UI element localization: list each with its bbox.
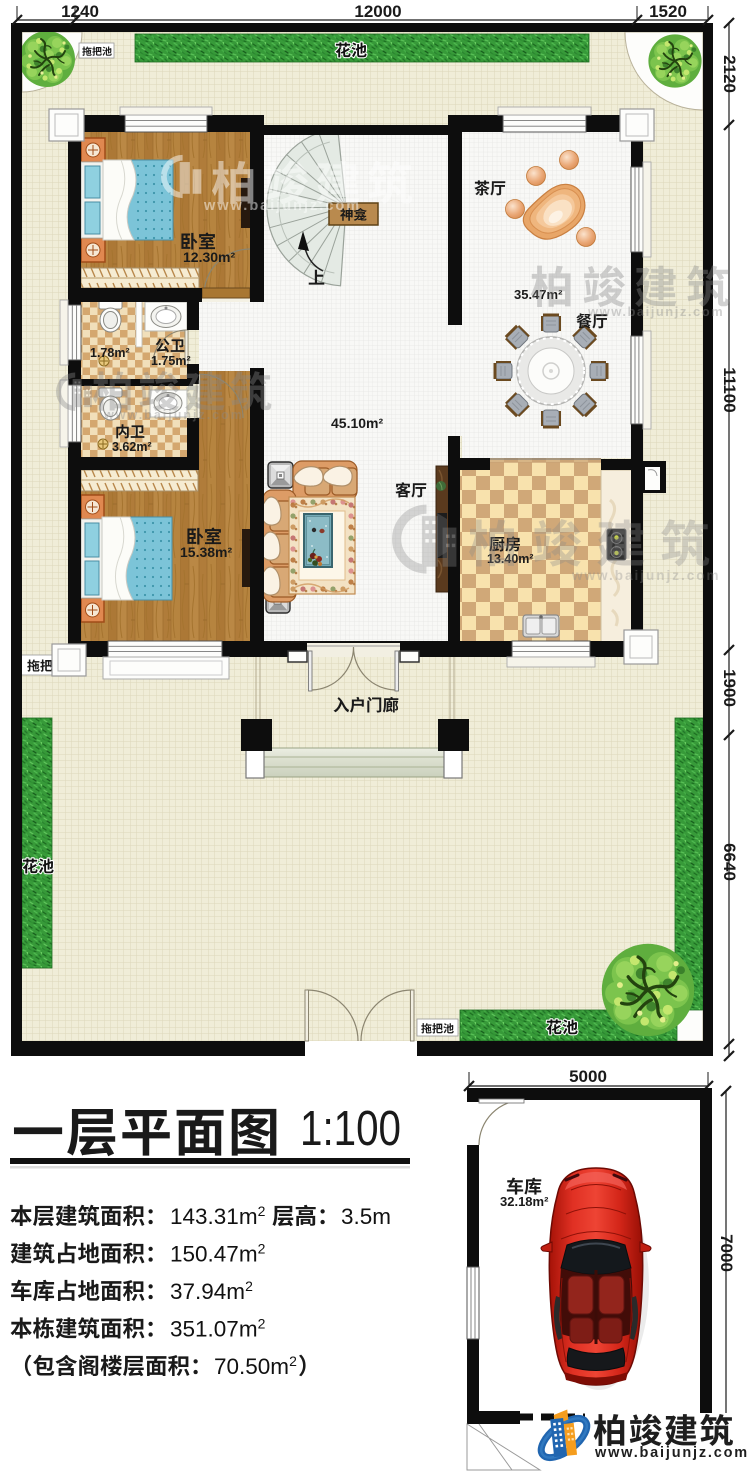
svg-text:1:100: 1:100 xyxy=(300,1102,401,1156)
svg-text:150.47m2: 150.47m2 xyxy=(170,1241,266,1267)
svg-text:www.baijunjz.com: www.baijunjz.com xyxy=(571,568,721,583)
svg-text:1900: 1900 xyxy=(720,669,739,707)
svg-text:www.baijunjz.com: www.baijunjz.com xyxy=(594,1445,749,1461)
svg-text:32.18m²: 32.18m² xyxy=(500,1194,549,1209)
svg-text:1.75m²: 1.75m² xyxy=(151,354,191,368)
svg-text:3.62m²: 3.62m² xyxy=(112,440,152,454)
svg-text:www.baijunjz.com: www.baijunjz.com xyxy=(203,198,361,214)
svg-text:45.10m²: 45.10m² xyxy=(331,415,383,431)
svg-text:1520: 1520 xyxy=(649,2,687,21)
svg-text:11100: 11100 xyxy=(720,367,739,412)
svg-text:1.78m²: 1.78m² xyxy=(90,346,130,360)
svg-text:351.07m2: 351.07m2 xyxy=(170,1316,266,1342)
svg-text:37.94m2: 37.94m2 xyxy=(170,1278,253,1304)
svg-text:www.baijunjz.com: www.baijunjz.com xyxy=(587,304,724,319)
svg-text:5000: 5000 xyxy=(569,1067,607,1086)
svg-text:70.50m2: 70.50m2 xyxy=(214,1353,297,1379)
svg-text:12.30m²: 12.30m² xyxy=(183,249,235,265)
svg-text:www.baijunjz.com: www.baijunjz.com xyxy=(103,408,244,422)
svg-text:2120: 2120 xyxy=(720,55,739,93)
svg-text:143.31m2: 143.31m2 xyxy=(170,1203,266,1229)
svg-text:15.38m²: 15.38m² xyxy=(180,544,232,560)
svg-text:1240: 1240 xyxy=(61,2,99,21)
svg-text:7000: 7000 xyxy=(717,1234,736,1272)
svg-text:6640: 6640 xyxy=(720,843,739,881)
svg-text:3.5m: 3.5m xyxy=(341,1204,391,1229)
svg-text:12000: 12000 xyxy=(354,2,401,21)
